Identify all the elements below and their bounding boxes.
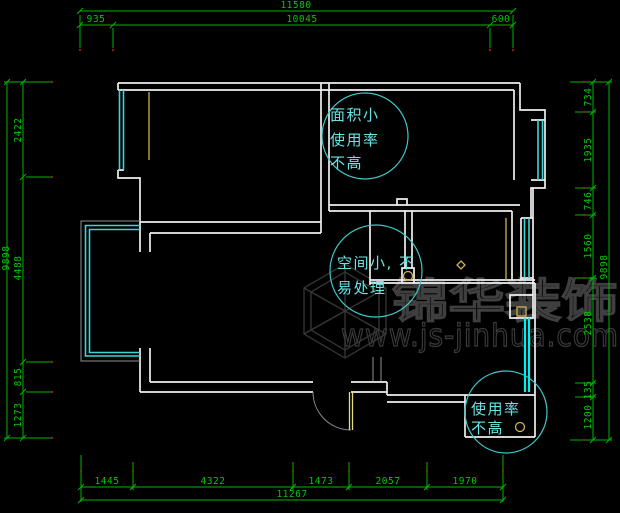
cad-floor-plan-viewport: 锦华装饰 www.js-jinhua.com 11580 935 10045 6…: [0, 0, 620, 513]
dim-right-seg-3: 746: [583, 192, 594, 211]
balcony-outline-and-door-arc: [81, 221, 381, 430]
dim-bottom-seg-1: 1445: [95, 476, 120, 487]
annotation-2-line-1: 空间小, 不: [337, 254, 416, 272]
dim-left-seg-4: 1273: [13, 403, 24, 428]
dim-left-seg-3: 815: [13, 368, 24, 387]
dim-top-total: 11580: [280, 0, 311, 11]
entry-door-leaf: [350, 392, 353, 430]
annotation-1-line-3: 不高: [330, 154, 363, 172]
dim-right-seg-2: 1935: [583, 138, 594, 163]
dimension-labels: 11580 935 10045 600 1445 4322 1473 2057 …: [1, 0, 610, 500]
dim-bottom-seg-3: 1473: [309, 476, 334, 487]
annotation-1-line-1: 面积小: [330, 106, 380, 124]
dim-top-seg-2: 10045: [286, 14, 317, 25]
watermark-url-text: www.js-jinhua.com: [341, 318, 619, 354]
dim-bottom-seg-2: 4322: [201, 476, 226, 487]
dim-right-seg-6: 135: [583, 381, 594, 400]
dim-bottom-total: 11267: [276, 489, 307, 500]
dim-right-seg-1: 734: [583, 88, 594, 107]
fixture-symbol: [516, 423, 525, 432]
dim-left-seg-2: 4488: [13, 256, 24, 281]
dim-right-seg-4: 1560: [583, 234, 594, 259]
annotation-3-line-1: 使用率: [471, 400, 521, 418]
dim-bottom-seg-5: 1970: [453, 476, 478, 487]
annotation-3-line-2: 不高: [471, 419, 504, 437]
annotation-2-line-2: 易处理: [337, 279, 387, 297]
dim-right-total: 9898: [599, 255, 610, 280]
dim-left-seg-1: 2422: [13, 118, 24, 143]
dim-bottom-seg-4: 2057: [376, 476, 401, 487]
dim-right-seg-5: 2538: [583, 311, 594, 336]
dim-left-total: 9898: [1, 246, 12, 271]
floor-plan-drawing: 锦华装饰 www.js-jinhua.com 11580 935 10045 6…: [0, 0, 620, 513]
dim-top-seg-3: 600: [492, 14, 511, 25]
dim-right-seg-7: 1200: [583, 405, 594, 430]
annotation-1-line-2: 使用率: [330, 131, 380, 149]
dim-top-seg-1: 935: [87, 14, 106, 25]
